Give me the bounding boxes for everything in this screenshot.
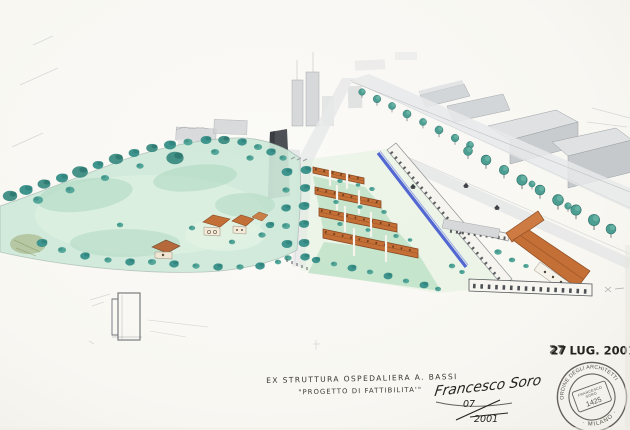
detail-sketch (112, 293, 208, 340)
drawing-canvas: EX STRUTTURA OSPEDALIERA A. BASSI "PROGE… (0, 0, 630, 430)
park (0, 138, 301, 272)
architect-seal: ORDINE DEGLI ARCHITETTI · MILANO · FRANC… (548, 353, 630, 430)
caption-line2: "PROGETTO DI FATTIBILITA'" (298, 386, 422, 397)
title-block: EX STRUTTURA OSPEDALIERA A. BASSI "PROGE… (266, 372, 458, 397)
signature-date-numerator: 07 (463, 399, 475, 410)
pencil-check-marks (605, 287, 624, 292)
date-stamp: 27 27LUG. 2001 (549, 343, 630, 358)
date-stamp-text: 27LUG. 2001 (551, 344, 630, 358)
caption-line1: EX STRUTTURA OSPEDALIERA A. BASSI (266, 372, 458, 385)
scanned-architectural-drawing: EX STRUTTURA OSPEDALIERA A. BASSI "PROGE… (0, 0, 630, 430)
